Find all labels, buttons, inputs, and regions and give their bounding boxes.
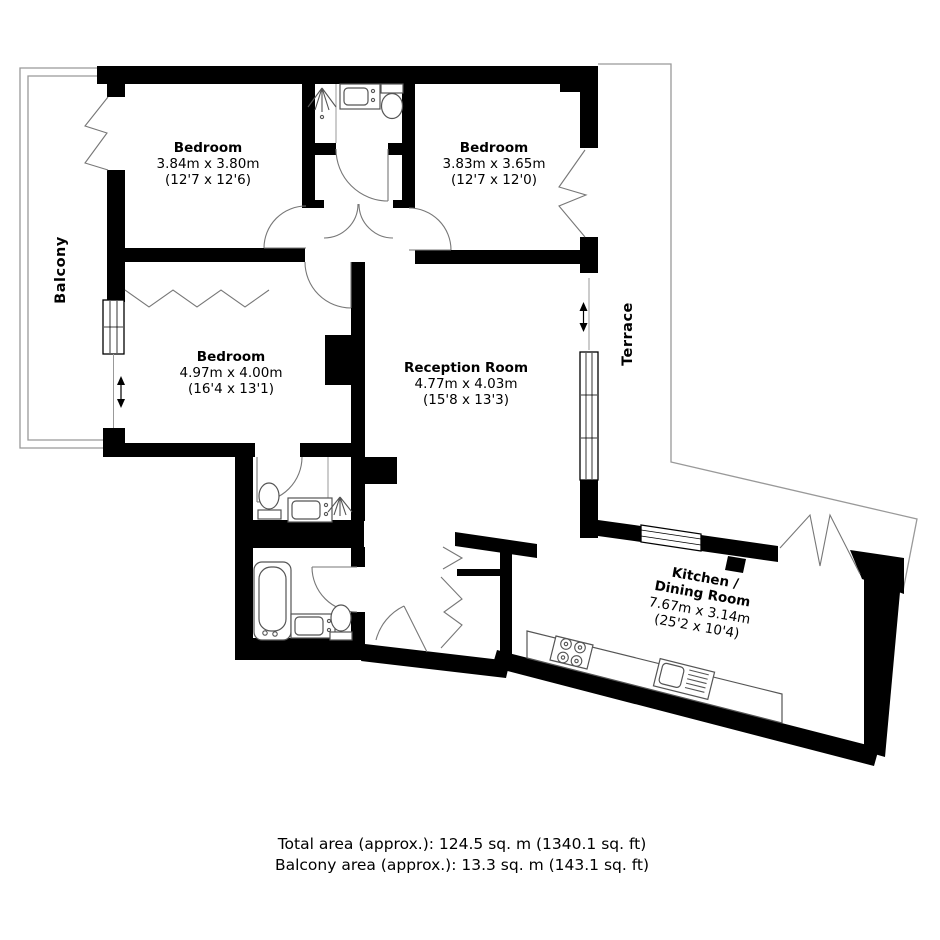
room-labels: Bedroom 3.84m x 3.80m (12'7 x 12'6) Bedr… (53, 140, 757, 644)
room-dims-imperial: (16'4 x 13'1) (188, 381, 274, 397)
total-area-text: Total area (approx.): 124.5 sq. m (1340.… (277, 835, 647, 853)
room-dims-metric: 4.77m x 4.03m (415, 376, 518, 392)
bedroom1-door (264, 206, 306, 248)
bedroom3-door (305, 262, 351, 308)
toilet-icon (381, 84, 403, 119)
kitchen-window (641, 525, 701, 551)
terrace-outline (598, 64, 917, 591)
floorplan-page: Bedroom 3.84m x 3.80m (12'7 x 12'6) Bedr… (0, 0, 940, 940)
room-dims-metric: 3.83m x 3.65m (443, 156, 546, 172)
sink-icon (291, 614, 335, 638)
closet-bifold-top (443, 547, 462, 569)
bedroom2-door (409, 208, 451, 250)
shower-room-door (336, 149, 388, 201)
bathroom-fixtures (254, 562, 352, 640)
shower-room-fixtures (308, 84, 403, 143)
ensuite-fixtures (258, 457, 352, 522)
room-dims-metric: 4.97m x 4.00m (180, 365, 283, 381)
bedroom3-sliding-door (103, 300, 124, 354)
toilet-icon (330, 605, 352, 640)
room-dims-imperial: (12'7 x 12'6) (165, 172, 251, 188)
bedroom3-wardrobe (125, 290, 269, 307)
room-name: Reception Room (404, 360, 528, 376)
bedroom2-terrace-opening (559, 150, 586, 237)
bedroom3-label: Bedroom 4.97m x 4.00m (16'4 x 13'1) (180, 349, 283, 397)
area-summary: Total area (approx.): 124.5 sq. m (1340.… (275, 835, 649, 874)
bedroom2-label: Bedroom 3.83m x 3.65m (12'7 x 12'0) (443, 140, 546, 188)
reception-label: Reception Room 4.77m x 4.03m (15'8 x 13'… (404, 360, 528, 408)
windows (103, 278, 701, 551)
balcony-slide-arrow-icon (117, 376, 125, 408)
kitchen-label: Kitchen / Dining Room 7.67m x 3.14m (25'… (645, 562, 758, 644)
reception-window (580, 352, 598, 480)
room-name: Bedroom (197, 349, 265, 365)
room-dims-imperial: (12'7 x 12'0) (451, 172, 537, 188)
closet-bifold-bottom (441, 577, 462, 648)
sink-icon (340, 84, 380, 109)
floorplan-drawing: Bedroom 3.84m x 3.80m (12'7 x 12'6) Bedr… (0, 0, 940, 940)
terrace-slide-arrow-icon (580, 302, 588, 332)
room-name: Bedroom (174, 140, 242, 156)
entrance-door (376, 606, 427, 652)
bedroom1-label: Bedroom 3.84m x 3.80m (12'7 x 12'6) (157, 140, 260, 188)
lobby-double-door (324, 204, 393, 238)
bedroom1-balcony-opening (85, 97, 108, 170)
kitchen-terrace-opening (780, 515, 860, 574)
terrace-label: Terrace (620, 302, 636, 366)
bathtub-icon (254, 562, 291, 640)
toilet-icon (258, 483, 281, 519)
balcony-label: Balcony (53, 236, 69, 304)
balcony-area-text: Balcony area (approx.): 13.3 sq. m (143.… (275, 856, 649, 874)
room-dims-metric: 3.84m x 3.80m (157, 156, 260, 172)
sink-icon (288, 498, 332, 522)
room-dims-imperial: (15'8 x 13'3) (423, 392, 509, 408)
room-name: Bedroom (460, 140, 528, 156)
bathroom-door (312, 567, 357, 612)
